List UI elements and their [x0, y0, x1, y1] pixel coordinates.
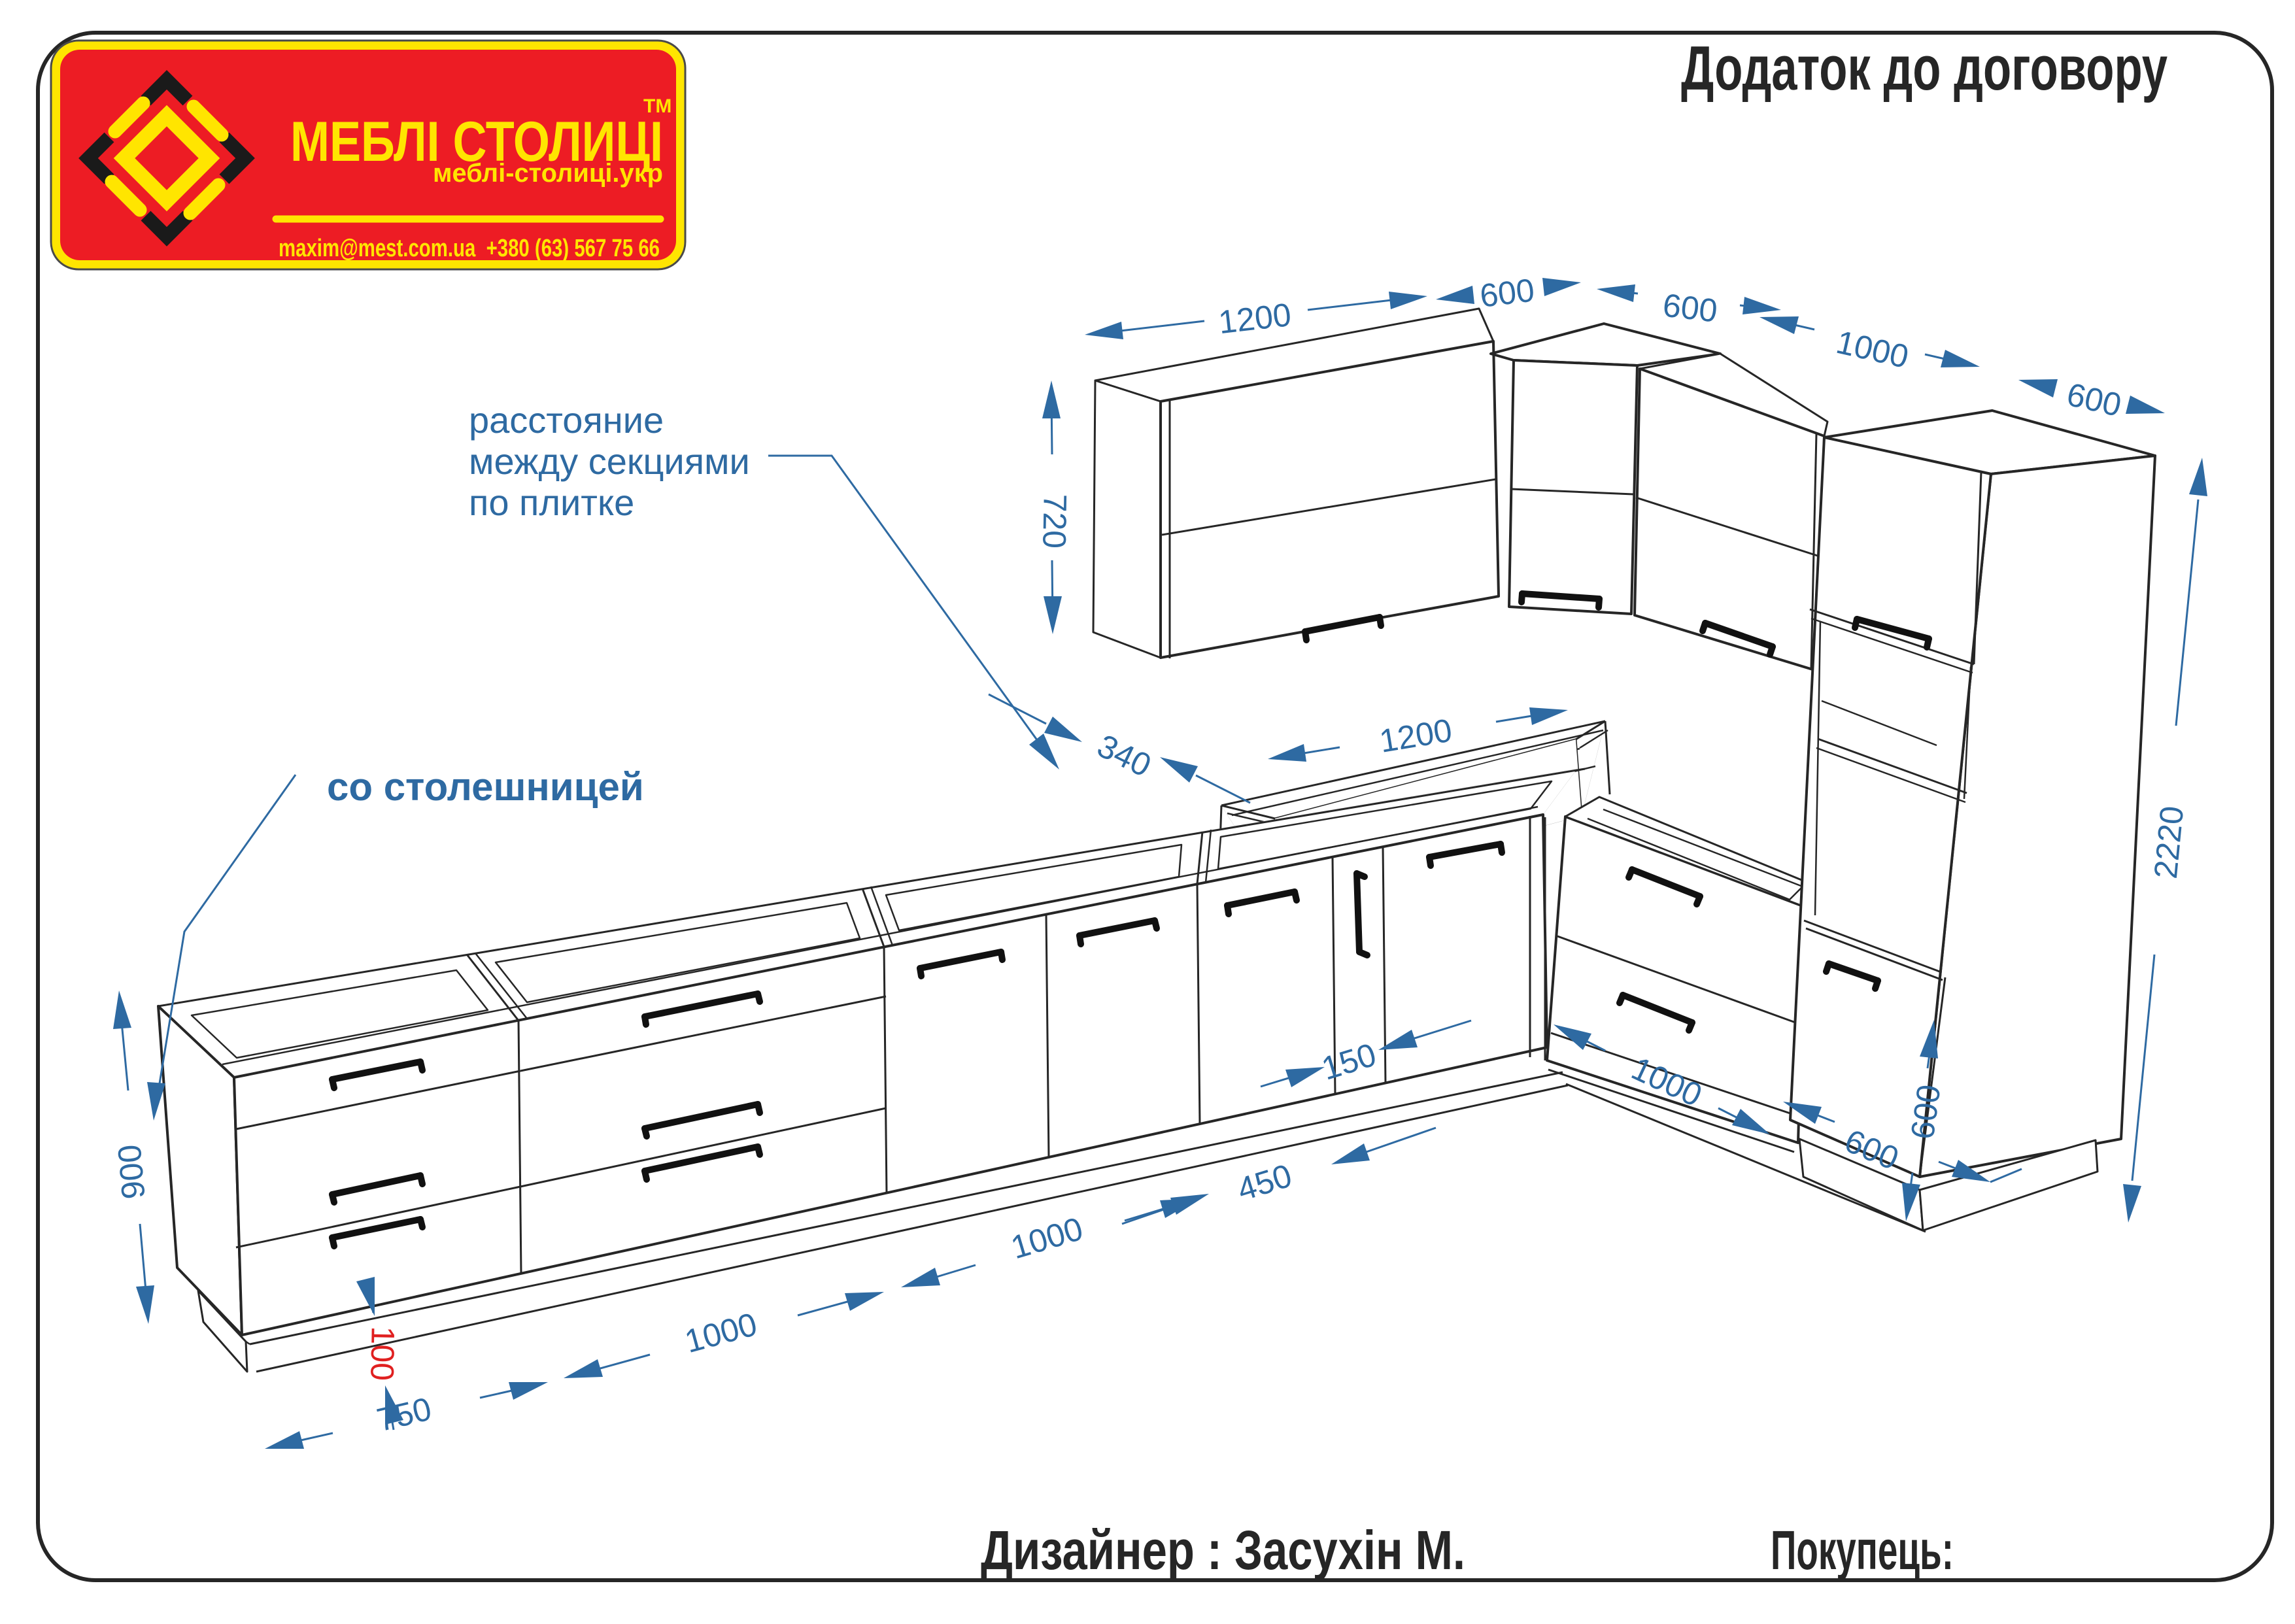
svg-text:720: 720: [1036, 494, 1073, 549]
svg-text:меблі-столиці.укр: меблі-столиці.укр: [433, 159, 663, 188]
svg-text:600: 600: [1661, 287, 1719, 330]
svg-text:со столешницей: со столешницей: [327, 765, 644, 809]
svg-text:600: 600: [1478, 271, 1536, 314]
svg-text:между секциями: между секциями: [469, 441, 750, 482]
svg-text:2220: 2220: [2147, 804, 2190, 880]
svg-text:Додаток до договору: Додаток до договору: [1681, 33, 2167, 103]
svg-text:maxim@mest.com.ua +380 (63) 5: maxim@mest.com.ua +380 (63) 567 75 66: [279, 235, 660, 262]
svg-text:100: 100: [364, 1326, 401, 1381]
svg-text:Покупець:: Покупець:: [1771, 1519, 1954, 1581]
svg-text:ТМ: ТМ: [643, 95, 671, 117]
svg-text:900: 900: [111, 1143, 152, 1200]
svg-text:по плитке: по плитке: [469, 482, 634, 523]
svg-text:600: 600: [1904, 1082, 1948, 1141]
svg-text:Дизайнер : Засухін М.: Дизайнер : Засухін М.: [981, 1519, 1465, 1581]
svg-text:расстояние: расстояние: [469, 399, 664, 441]
